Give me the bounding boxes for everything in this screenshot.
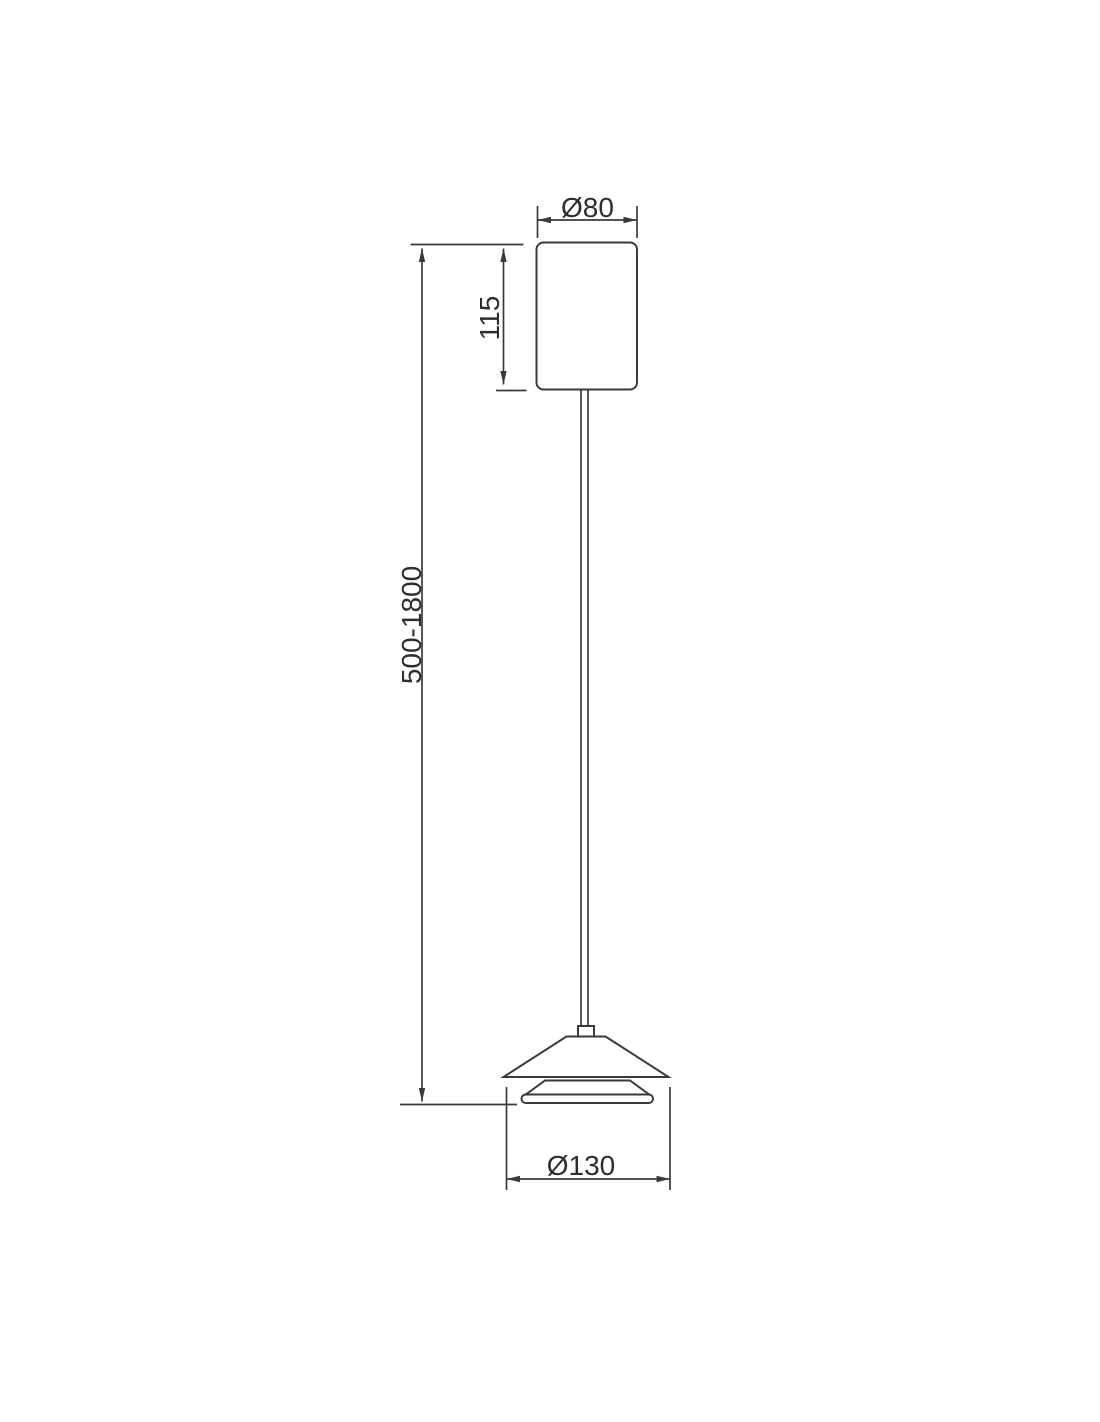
shade-diameter-label: Ø130: [547, 1150, 616, 1181]
arrow-down-icon: [500, 371, 506, 385]
arrow-up-icon: [500, 249, 506, 263]
pendant-lamp-technical-drawing: Ø80 115 500-1800: [0, 0, 1100, 1422]
canopy-outline: [537, 243, 638, 390]
arrow-left-icon: [538, 217, 552, 224]
canopy-height-label: 115: [474, 296, 505, 341]
cable-grip: [578, 1026, 594, 1037]
dimension-suspension-length: 500-1800: [396, 249, 517, 1105]
arrow-right-icon: [624, 217, 638, 224]
arrow-left-icon: [507, 1176, 521, 1183]
shade-bottom-rim: [522, 1095, 654, 1104]
shade-upper-cone: [504, 1037, 669, 1078]
canopy-diameter-label: Ø80: [561, 192, 614, 223]
arrow-down-icon: [419, 1088, 425, 1102]
arrow-up-icon: [419, 249, 425, 263]
suspension-length-label: 500-1800: [396, 566, 427, 684]
arrow-right-icon: [657, 1176, 671, 1183]
dimension-canopy-height: 115: [474, 249, 527, 391]
dimension-canopy-diameter: Ø80: [538, 192, 638, 238]
suspension-cable: [581, 390, 588, 1026]
drawing-canvas: Ø80 115 500-1800: [0, 0, 1100, 1422]
shade-lower-ring: [525, 1081, 651, 1096]
